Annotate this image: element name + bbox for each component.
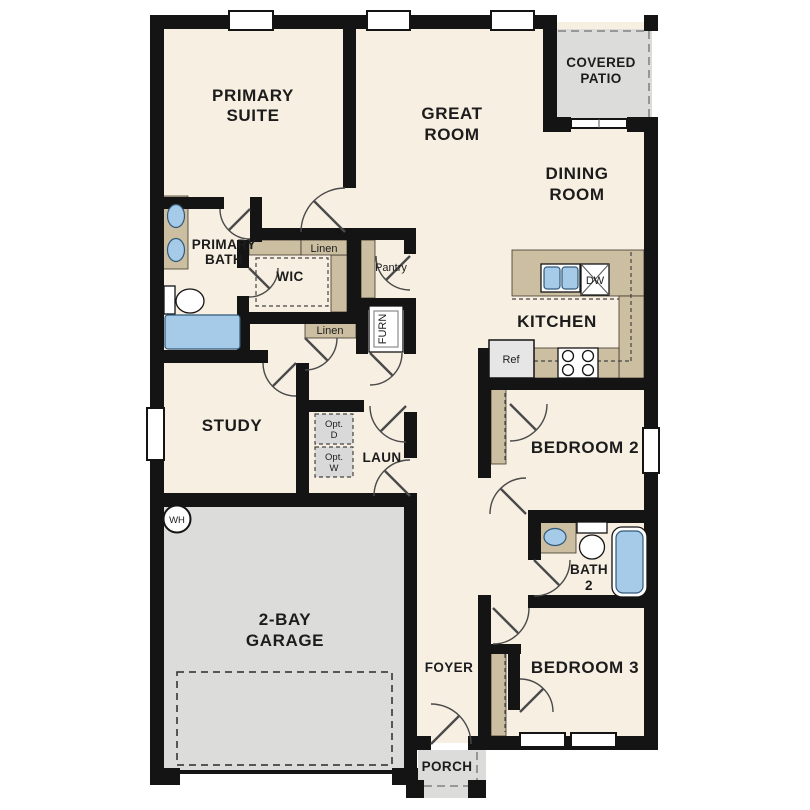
kitchen-sink-fixture bbox=[541, 264, 580, 292]
room-label-laundry: LAUN bbox=[362, 450, 401, 465]
room-label-porch: PORCH bbox=[422, 759, 473, 774]
svg-text:ROOM: ROOM bbox=[549, 185, 604, 204]
window bbox=[229, 11, 273, 30]
svg-text:PATIO: PATIO bbox=[580, 71, 621, 86]
sink-fixture bbox=[168, 239, 185, 262]
floor-plan-svg: PRIMARY SUITE GREAT ROOM COVERED PATIO D… bbox=[0, 0, 810, 810]
label-water-heater: WH bbox=[169, 515, 185, 526]
room-label-primary-suite: PRIMARY bbox=[212, 86, 294, 105]
label-refrigerator: Ref bbox=[502, 354, 520, 366]
svg-text:BATH: BATH bbox=[205, 252, 243, 267]
window bbox=[520, 733, 565, 747]
svg-text:SUITE: SUITE bbox=[226, 106, 279, 125]
room-label-kitchen: KITCHEN bbox=[517, 312, 597, 331]
room-label-garage: 2-BAY bbox=[259, 610, 312, 629]
room-label-bath-2: BATH bbox=[570, 562, 608, 577]
label-furnace: FURN bbox=[377, 314, 389, 345]
bedroom2-closet-shelf bbox=[491, 382, 506, 464]
label-linen-hall: Linen bbox=[317, 325, 344, 337]
label-dishwasher: DW bbox=[586, 275, 605, 287]
room-label-primary-bath: PRIMARY bbox=[192, 237, 257, 252]
stove-fixture bbox=[558, 348, 598, 378]
room-label-great-room: GREAT bbox=[421, 104, 482, 123]
window bbox=[491, 11, 534, 30]
room-label-dining-room: DINING bbox=[545, 164, 608, 183]
svg-text:ROOM: ROOM bbox=[424, 125, 479, 144]
floor-plan-page: PRIMARY SUITE GREAT ROOM COVERED PATIO D… bbox=[0, 0, 810, 810]
label-linen-wic: Linen bbox=[311, 243, 338, 255]
sink-fixture bbox=[168, 205, 185, 228]
room-label-bedroom-2: BEDROOM 2 bbox=[531, 438, 639, 457]
window bbox=[147, 408, 164, 460]
label-opt-dryer: Opt. bbox=[325, 419, 343, 430]
wic-shelf-top bbox=[249, 240, 301, 255]
window bbox=[367, 11, 410, 30]
wic-shelf-side bbox=[331, 255, 347, 312]
label-opt-washer: Opt. bbox=[325, 452, 343, 463]
svg-text:GARAGE: GARAGE bbox=[246, 631, 324, 650]
svg-text:W: W bbox=[330, 463, 339, 474]
label-pantry: Pantry bbox=[375, 262, 407, 274]
sink-fixture bbox=[544, 529, 566, 546]
room-label-bedroom-3: BEDROOM 3 bbox=[531, 658, 639, 677]
room-label-study: STUDY bbox=[202, 416, 263, 435]
room-label-foyer: FOYER bbox=[425, 660, 474, 675]
svg-text:2: 2 bbox=[585, 578, 593, 593]
bathtub-fixture bbox=[165, 315, 240, 349]
bathtub-fixture bbox=[612, 527, 647, 597]
window bbox=[643, 428, 659, 473]
room-label-covered-patio: COVERED bbox=[566, 55, 636, 70]
bedroom3-closet-shelf bbox=[491, 650, 506, 736]
toilet-fixture bbox=[577, 522, 607, 559]
svg-text:D: D bbox=[331, 430, 338, 441]
room-label-wic: WIC bbox=[276, 269, 303, 284]
patio-slider-door bbox=[571, 119, 627, 128]
window bbox=[571, 733, 616, 747]
pantry-shelf bbox=[361, 240, 375, 298]
